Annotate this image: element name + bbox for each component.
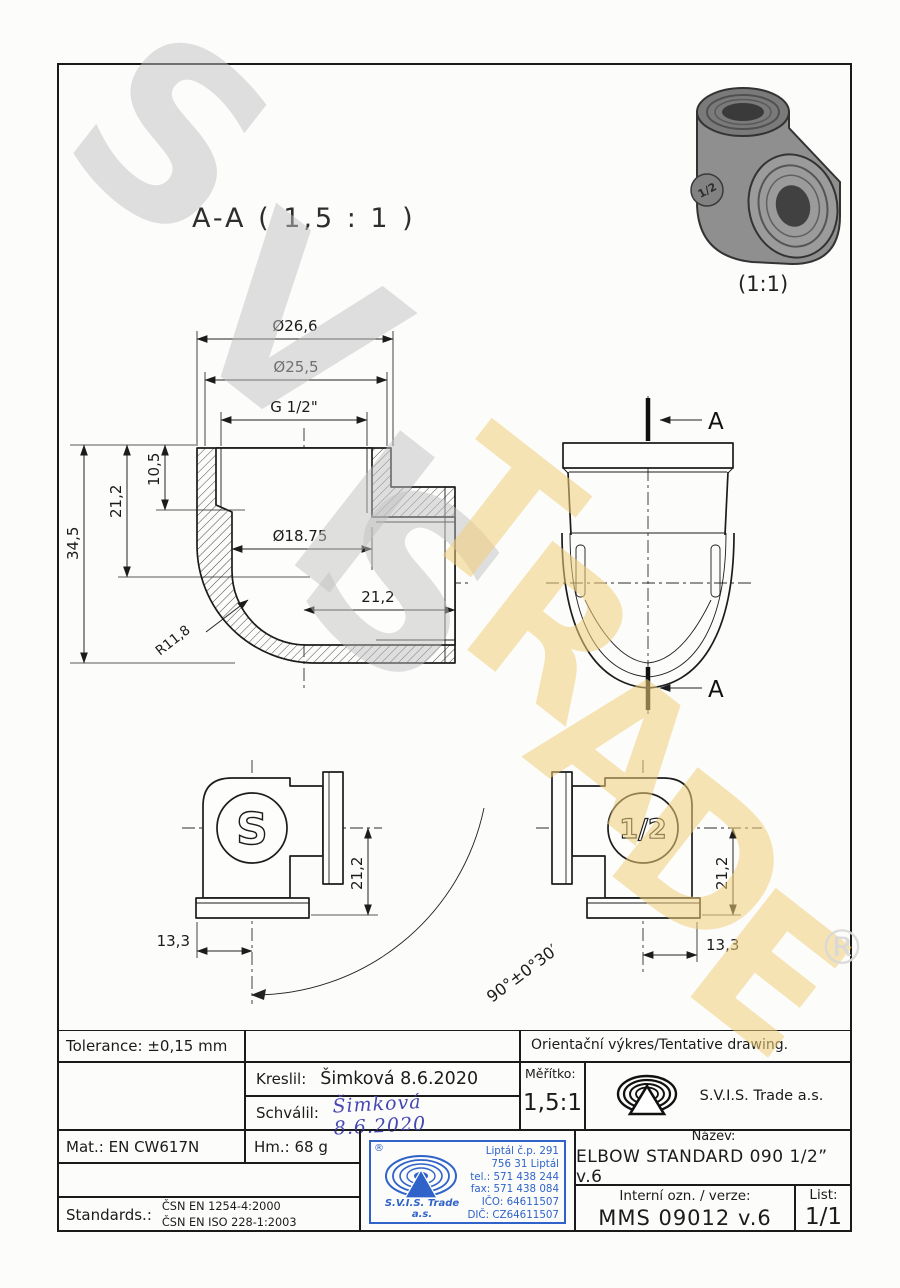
titleblock-cell-meritko: Měřítko: 1,5:1 bbox=[520, 1062, 585, 1130]
dim-label: Ø18.75 bbox=[273, 527, 328, 545]
titleblock-cell-material: Mat.: EN CW617N bbox=[57, 1130, 245, 1163]
material-text: Mat.: EN CW617N bbox=[66, 1138, 199, 1156]
kreslil-value: Šimková 8.6.2020 bbox=[320, 1069, 478, 1089]
dim-label: G 1/2" bbox=[270, 398, 317, 416]
tentative-text: Orientační výkres/Tentative drawing. bbox=[531, 1037, 788, 1053]
section-arrow-label: A bbox=[708, 677, 724, 703]
dim-label: 21,2 bbox=[361, 588, 394, 606]
dim-label: 34,5 bbox=[64, 527, 82, 560]
photo-scale-caption: (1:1) bbox=[738, 272, 788, 296]
section-arrow-label: A bbox=[708, 409, 724, 435]
sheet-label: List: bbox=[809, 1187, 837, 1203]
weight-text: Hm.: 68 g bbox=[254, 1138, 328, 1156]
dim-label: 90°±0°30′ bbox=[483, 940, 562, 1006]
section-view: Ø26,6 Ø25,5 G 1/2" 34,5 bbox=[64, 317, 472, 692]
dim-label: Ø26,6 bbox=[272, 317, 317, 335]
product-photo: 1/2 bbox=[691, 88, 848, 267]
stamp-address-6: DIČ: CZ64611507 bbox=[467, 1209, 559, 1222]
brand-stamp-letter: S bbox=[236, 804, 268, 855]
tolerance-text: Tolerance: ±0,15 mm bbox=[66, 1037, 227, 1055]
standards-label: Standards.: bbox=[66, 1206, 152, 1224]
titleblock-cell-standards: Standards.: ČSN EN 1254-4:2000 ČSN EN IS… bbox=[57, 1197, 360, 1232]
nazev-label: Název: bbox=[692, 1129, 736, 1144]
dim-label: R11,8 bbox=[153, 622, 194, 659]
titleblock-cell-tolerance: Tolerance: ±0,15 mm bbox=[57, 1030, 245, 1062]
sheet-value: 1/1 bbox=[805, 1204, 842, 1230]
meritko-label: Měřítko: bbox=[521, 1063, 584, 1084]
titleblock-cell-stamp: ® S.V.I.S. Trade a.s. Liptál č.p. 291 75… bbox=[360, 1130, 575, 1232]
stamp-address-3: tel.: 571 438 244 bbox=[467, 1171, 559, 1184]
company-stamp: ® S.V.I.S. Trade a.s. Liptál č.p. 291 75… bbox=[369, 1140, 566, 1224]
registered-mark-watermark: ® bbox=[818, 920, 866, 976]
titleblock-cell-empty-top bbox=[245, 1030, 520, 1062]
dim-label: 13,3 bbox=[157, 932, 190, 950]
section-title: A-A ( 1,5 : 1 ) bbox=[192, 203, 416, 234]
dim-label: 21,2 bbox=[107, 485, 125, 518]
schvalil-label: Schválil: bbox=[256, 1104, 319, 1122]
standard-line-2: ČSN EN ISO 228-1:2003 bbox=[162, 1215, 297, 1230]
side-view: A A bbox=[546, 396, 752, 714]
dim-label: 10,5 bbox=[145, 453, 163, 486]
company-logo-icon bbox=[614, 1073, 680, 1119]
dim-label: 21,2 bbox=[348, 857, 366, 890]
stamp-address-1: Liptál č.p. 291 bbox=[467, 1145, 559, 1158]
dim-thread: G 1/2" bbox=[221, 398, 367, 446]
drawing-title: ELBOW STANDARD 090 1/2” v.6 bbox=[576, 1147, 851, 1187]
titleblock-cell-company: S.V.I.S. Trade a.s. bbox=[585, 1062, 852, 1130]
dim-label: Ø25,5 bbox=[273, 358, 318, 376]
internal-id-value: MMS 09012 v.6 bbox=[598, 1206, 772, 1230]
dim-label: 21,2 bbox=[713, 857, 731, 890]
back-view: 1/2 21,2 13,3 bbox=[536, 760, 762, 975]
front-view: S 21,2 13,3 90°±0°30′ bbox=[157, 760, 562, 1006]
stamp-company-line2: a.s. bbox=[379, 1209, 465, 1220]
standard-line-1: ČSN EN 1254-4:2000 bbox=[162, 1199, 297, 1214]
titleblock-cell-empty-bottom bbox=[57, 1163, 360, 1197]
titleblock-cell-title: Název: ELBOW STANDARD 090 1/2” v.6 bbox=[575, 1130, 852, 1185]
stamp-logo-icon bbox=[381, 1154, 461, 1200]
internal-id-label: Interní ozn. / verze: bbox=[619, 1188, 750, 1204]
stamp-address-5: IČO: 64611507 bbox=[467, 1196, 559, 1209]
stamp-registered-mark: ® bbox=[374, 1143, 384, 1154]
meritko-value: 1,5:1 bbox=[521, 1090, 584, 1116]
kreslil-label: Kreslil: bbox=[256, 1070, 306, 1088]
stamp-address-4: fax: 571 438 084 bbox=[467, 1183, 559, 1196]
dim-back-offset: 13,3 bbox=[643, 922, 739, 962]
dim-back-height: 21,2 bbox=[702, 828, 741, 915]
drawing-sheet: S V I S T R A D E ® A-A ( 1,5 : 1 ) (1:1… bbox=[0, 0, 900, 1288]
size-stamp-label: 1/2 bbox=[619, 814, 666, 845]
titleblock-cell-sheet: List: 1/1 bbox=[795, 1185, 852, 1232]
titleblock-cell-schvalil: Schválil: Šimková 8.6.2020 bbox=[245, 1096, 520, 1130]
dim-front-offset: 13,3 bbox=[157, 922, 252, 958]
dim-label: 13,3 bbox=[706, 936, 739, 954]
titleblock-cell-weight: Hm.: 68 g bbox=[245, 1130, 360, 1163]
titleblock-cell-tentative: Orientační výkres/Tentative drawing. bbox=[520, 1030, 852, 1062]
titleblock-cell-empty-left bbox=[57, 1062, 245, 1130]
technical-drawing: 1/2 Ø26,6 Ø25,5 bbox=[0, 0, 900, 1030]
dim-dia-outer: Ø26,6 bbox=[197, 317, 393, 446]
company-name: S.V.I.S. Trade a.s. bbox=[700, 1088, 824, 1104]
stamp-address-2: 756 31 Liptál bbox=[467, 1158, 559, 1171]
titleblock-cell-internal-id: Interní ozn. / verze: MMS 09012 v.6 bbox=[575, 1185, 795, 1232]
stamp-company-line1: S.V.I.S. Trade bbox=[379, 1198, 465, 1209]
